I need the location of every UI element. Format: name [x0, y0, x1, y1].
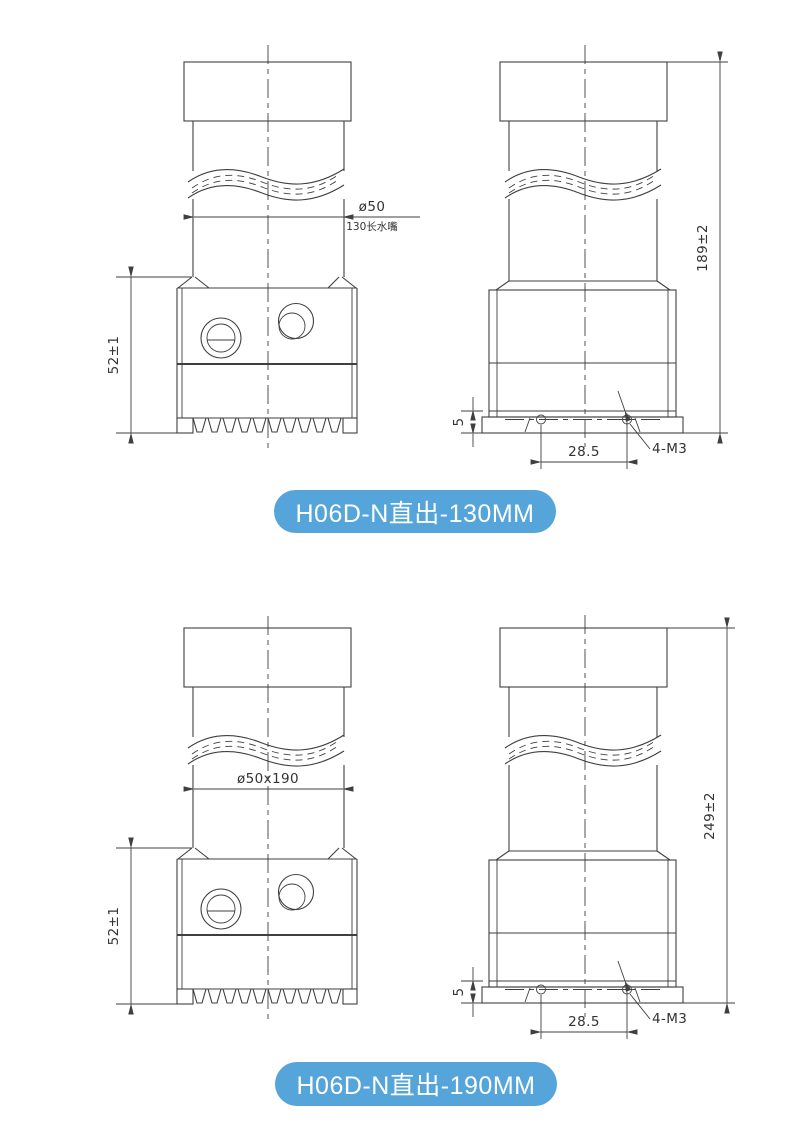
cap-outline — [184, 628, 351, 687]
drawing-130-front-view: ø50 130长水嘴 52±1 — [106, 45, 420, 450]
body-box — [461, 45, 683, 469]
drawing-130-side-view: 189±2 5 28.5 4-M3 — [451, 45, 728, 469]
cap-outline — [500, 62, 667, 121]
cap-outline — [184, 62, 351, 121]
dim-hole-spacing-label: 28.5 — [568, 1014, 600, 1030]
break-lines — [505, 735, 661, 766]
model-badge-190: H06D-N直出-190MM — [275, 1062, 557, 1106]
dim-total-height-label: 249±2 — [702, 792, 718, 840]
break-lines — [188, 169, 344, 200]
dim-flange-label: 5 — [451, 988, 467, 997]
drawing-page: ø50 130长水嘴 52±1 189±2 5 28.5 4-M3 ø50x19… — [0, 0, 790, 1139]
drawing-190-side-view: 249±2 5 28.5 4-M3 — [451, 615, 735, 1039]
head-with-fins — [116, 45, 357, 450]
cap-outline — [500, 628, 667, 687]
dim-total-height-label: 189±2 — [695, 224, 711, 272]
model-badge-190-label: H06D-N直出-190MM — [297, 1066, 536, 1102]
dim-head-height-label: 52±1 — [106, 336, 122, 375]
dim-width-note: 130长水嘴 — [346, 221, 398, 233]
dim-flange-label: 5 — [451, 418, 467, 427]
break-lines — [188, 735, 344, 766]
model-badge-130-label: H06D-N直出-130MM — [296, 494, 535, 530]
technical-drawing-canvas: ø50 130长水嘴 52±1 189±2 5 28.5 4-M3 ø50x19… — [0, 0, 790, 1139]
body-box — [461, 615, 683, 1039]
dim-head-height-label: 52±1 — [106, 907, 122, 946]
head-with-fins — [116, 616, 357, 1021]
break-lines — [505, 169, 661, 200]
model-badge-130: H06D-N直出-130MM — [274, 490, 556, 533]
dim-hole-spacing-label: 28.5 — [568, 444, 600, 460]
thread-spec-label: 4-M3 — [652, 441, 687, 457]
thread-spec-label: 4-M3 — [652, 1011, 687, 1027]
dim-width-label: ø50 — [359, 199, 386, 215]
drawing-190-front-view: ø50x190 52±1 — [106, 616, 357, 1021]
